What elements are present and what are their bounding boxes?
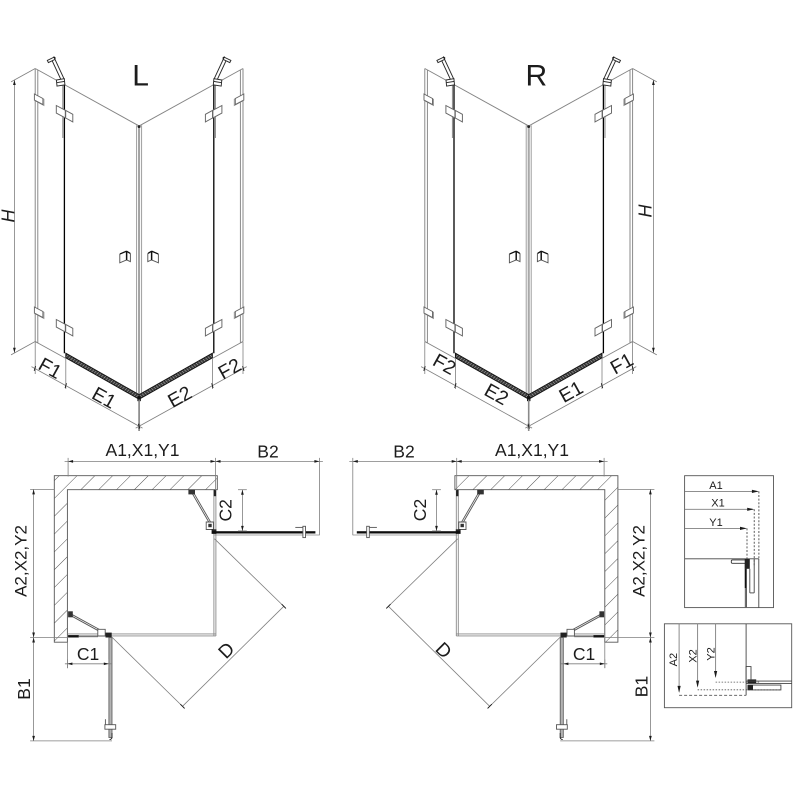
svg-text:C1: C1: [77, 644, 99, 664]
svg-text:R: R: [526, 60, 548, 93]
svg-text:H: H: [0, 209, 19, 223]
svg-text:B2: B2: [393, 442, 414, 462]
svg-text:C2: C2: [410, 499, 430, 521]
svg-text:A1,X1,Y1: A1,X1,Y1: [495, 440, 569, 460]
svg-text:B2: B2: [257, 442, 278, 462]
svg-text:A2,X2,Y2: A2,X2,Y2: [12, 525, 31, 597]
svg-text:L: L: [132, 60, 149, 93]
svg-text:X2: X2: [688, 649, 700, 662]
svg-text:Y1: Y1: [709, 517, 722, 529]
svg-text:C2: C2: [216, 499, 236, 521]
svg-text:C1: C1: [573, 644, 595, 664]
svg-text:A2: A2: [668, 653, 680, 666]
svg-text:A1: A1: [709, 480, 722, 492]
svg-text:X1: X1: [711, 498, 724, 510]
svg-text:H: H: [636, 204, 656, 218]
svg-text:B1: B1: [14, 678, 34, 699]
svg-text:A1,X1,Y1: A1,X1,Y1: [106, 440, 180, 460]
svg-text:B1: B1: [632, 676, 652, 697]
svg-text:Y2: Y2: [705, 647, 717, 660]
svg-text:A2,X2,Y2: A2,X2,Y2: [629, 525, 648, 597]
